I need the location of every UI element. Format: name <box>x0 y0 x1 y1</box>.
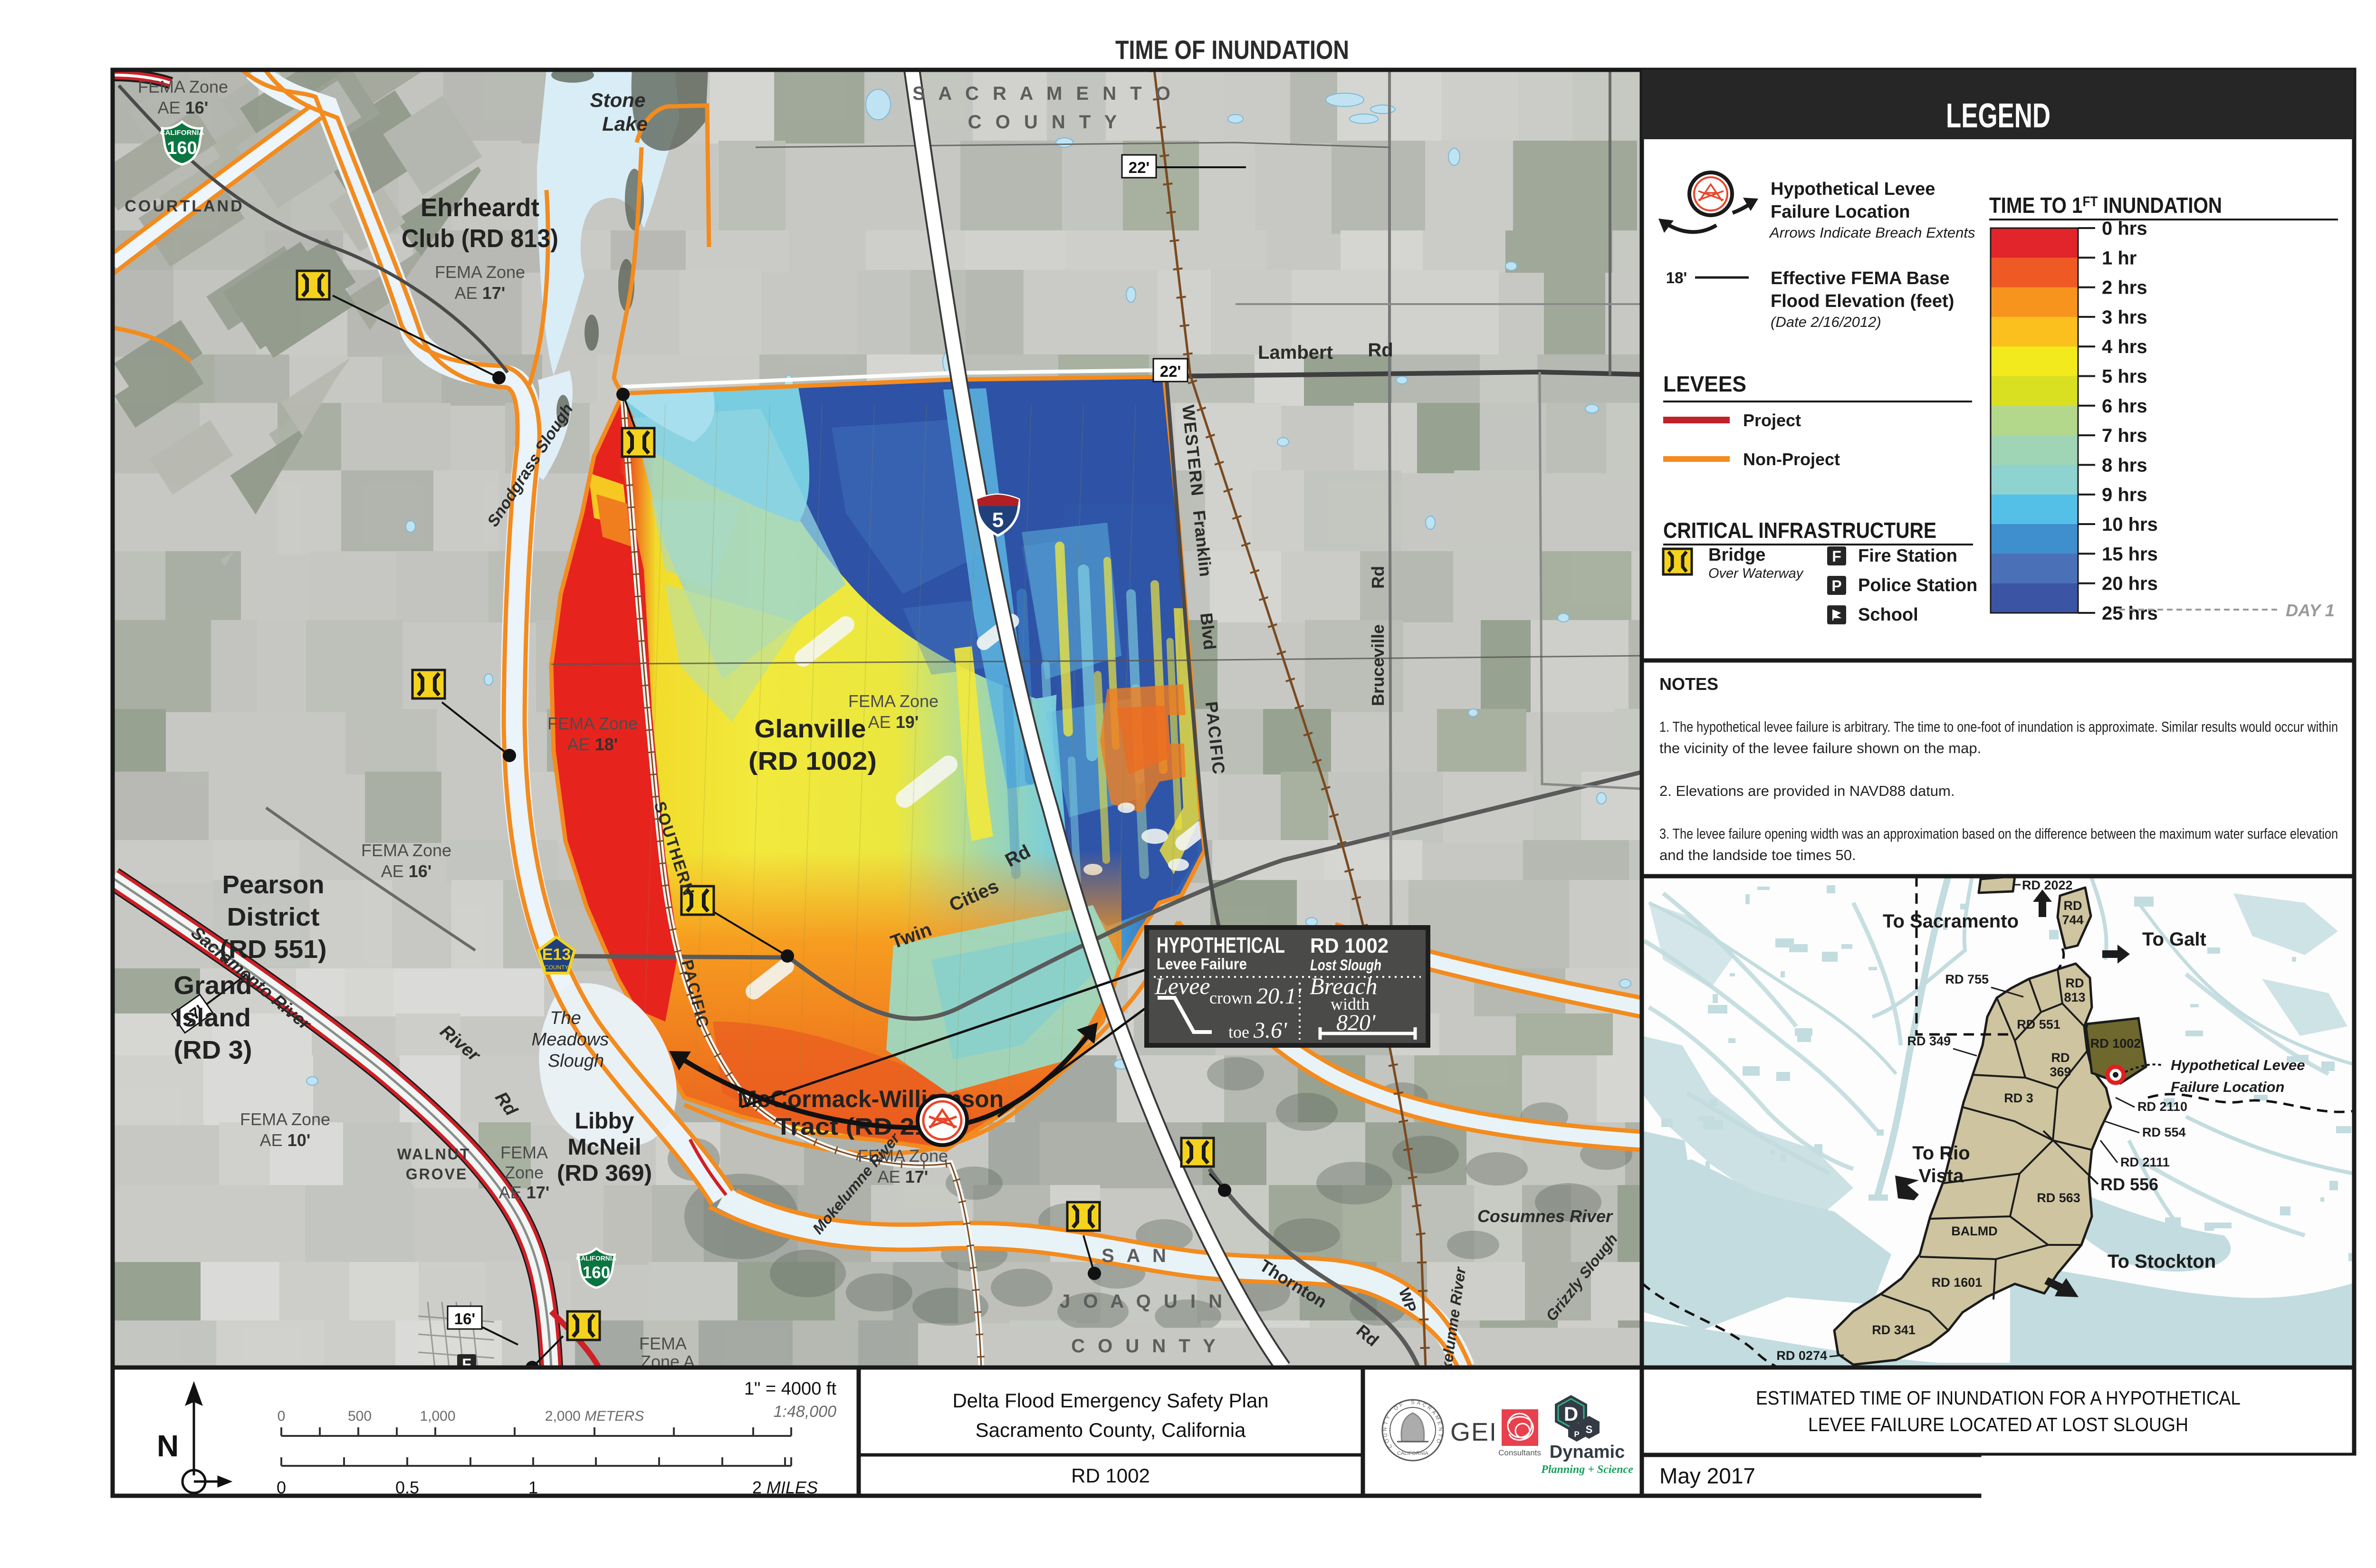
svg-text:(RD 369): (RD 369) <box>557 1161 652 1186</box>
svg-text:16': 16' <box>454 1310 476 1328</box>
svg-text:813: 813 <box>2064 990 2085 1004</box>
svg-text:Blvd: Blvd <box>1197 612 1220 651</box>
svg-text:160: 160 <box>167 138 197 158</box>
svg-text:AE 19': AE 19' <box>868 712 919 732</box>
svg-text:22': 22' <box>1160 363 1181 380</box>
svg-text:GEI: GEI <box>1450 1418 1497 1446</box>
svg-text:2. Elevations are provided in: 2. Elevations are provided in NAVD88 dat… <box>1659 783 1954 799</box>
svg-text:AE 17': AE 17' <box>455 283 506 303</box>
svg-text:Meadows: Meadows <box>532 1030 609 1050</box>
svg-text:Hypothetical Levee: Hypothetical Levee <box>1771 179 1935 199</box>
svg-text:25 hrs: 25 hrs <box>2102 603 2158 624</box>
svg-text:P: P <box>1574 1430 1579 1439</box>
svg-text:Libby: Libby <box>575 1109 634 1134</box>
svg-text:ESTIMATED TIME OF INUNDATION F: ESTIMATED TIME OF INUNDATION FOR A HYPOT… <box>1756 1387 2241 1409</box>
svg-text:CRITICAL INFRASTRUCTURE: CRITICAL INFRASTRUCTURE <box>1663 518 1936 543</box>
svg-text:To Stockton: To Stockton <box>2108 1251 2216 1272</box>
svg-text:N: N <box>1437 1427 1443 1431</box>
svg-text:2,000 METERS: 2,000 METERS <box>545 1408 644 1424</box>
svg-text:N: N <box>157 1429 179 1463</box>
svg-text:TIME OF INUNDATION: TIME OF INUNDATION <box>1115 35 1349 65</box>
svg-text:Rd: Rd <box>1368 566 1388 589</box>
svg-text:To Sacramento: To Sacramento <box>1883 911 2019 932</box>
svg-text:0: 0 <box>277 1478 286 1497</box>
svg-text:820': 820' <box>1336 1010 1376 1035</box>
svg-text:1:48,000: 1:48,000 <box>774 1403 836 1421</box>
svg-text:Bridge: Bridge <box>1708 545 1765 565</box>
svg-text:7 hrs: 7 hrs <box>2102 425 2147 446</box>
svg-text:LEVEES: LEVEES <box>1663 372 1746 396</box>
svg-text:500: 500 <box>348 1408 372 1424</box>
svg-text:S: S <box>1586 1424 1593 1435</box>
svg-text:RD 1002: RD 1002 <box>1310 934 1389 957</box>
svg-text:Pearson: Pearson <box>222 870 325 899</box>
svg-text:Club (RD 813): Club (RD 813) <box>402 224 558 253</box>
svg-text:To Rio: To Rio <box>1912 1143 1970 1164</box>
svg-text:C O U N T Y: C O U N T Y <box>1071 1336 1219 1357</box>
svg-text:5 hrs: 5 hrs <box>2102 366 2147 387</box>
svg-text:FEMA: FEMA <box>500 1143 548 1162</box>
svg-text:LEGEND: LEGEND <box>1946 97 2050 135</box>
svg-text:N: N <box>1382 1427 1388 1431</box>
svg-text:HYPOTHETICAL: HYPOTHETICAL <box>1157 933 1285 957</box>
svg-text:RD 554: RD 554 <box>2142 1125 2186 1139</box>
svg-text:RD 2111: RD 2111 <box>2120 1155 2170 1169</box>
svg-text:Vista: Vista <box>1919 1166 1964 1186</box>
svg-text:RD 1601: RD 1601 <box>1932 1275 1983 1290</box>
svg-text:DAY 1: DAY 1 <box>2286 601 2335 620</box>
svg-text:(Date 2/16/2012): (Date 2/16/2012) <box>1771 314 1881 330</box>
svg-text:Non-Project: Non-Project <box>1743 449 1840 469</box>
svg-text:Hypothetical Levee: Hypothetical Levee <box>2171 1057 2305 1073</box>
svg-text:AE 18': AE 18' <box>567 735 618 754</box>
svg-text:2 MILES: 2 MILES <box>752 1478 818 1497</box>
svg-text:D: D <box>1564 1403 1578 1425</box>
svg-text:TIME TO 1FT INUNDATION: TIME TO 1FT INUNDATION <box>1989 193 2222 218</box>
svg-text:160: 160 <box>583 1263 610 1282</box>
svg-text:Planning + Science: Planning + Science <box>1541 1463 1633 1476</box>
svg-text:RD 2110: RD 2110 <box>2137 1100 2187 1114</box>
svg-text:6 hrs: 6 hrs <box>2102 396 2147 417</box>
svg-text:RD 2022: RD 2022 <box>2022 878 2073 892</box>
svg-text:Lake: Lake <box>602 113 648 135</box>
svg-text:May 2017: May 2017 <box>1659 1463 1755 1488</box>
svg-text:RD: RD <box>2051 1051 2070 1065</box>
svg-text:S: S <box>1411 1400 1414 1405</box>
svg-text:Failure Location: Failure Location <box>2171 1079 2284 1095</box>
svg-text:CALIFORNIA: CALIFORNIA <box>160 129 204 137</box>
svg-text:(RD 3): (RD 3) <box>174 1036 252 1064</box>
svg-text:Consultants: Consultants <box>1498 1448 1541 1457</box>
svg-text:RD: RD <box>2064 899 2082 913</box>
svg-text:AE 10': AE 10' <box>260 1130 311 1150</box>
svg-text:Ehrheardt: Ehrheardt <box>421 193 539 222</box>
svg-text:Police Station: Police Station <box>1858 575 1977 595</box>
svg-text:Effective FEMA Base: Effective FEMA Base <box>1771 268 1950 288</box>
svg-text:RD 0274: RD 0274 <box>1776 1348 1827 1363</box>
svg-text:RD 1002: RD 1002 <box>1071 1464 1150 1487</box>
svg-text:Glanville: Glanville <box>755 715 866 743</box>
svg-text:RD 1002: RD 1002 <box>2090 1036 2141 1051</box>
svg-text:District: District <box>227 903 320 931</box>
svg-text:Levee: Levee <box>1154 973 1210 999</box>
svg-text:CALIFORNIA: CALIFORNIA <box>1397 1451 1429 1456</box>
svg-text:School: School <box>1858 605 1918 625</box>
svg-text:Cosumnes River: Cosumnes River <box>1477 1206 1613 1226</box>
svg-text:NOTES: NOTES <box>1659 674 1718 694</box>
svg-text:C O U N T Y: C O U N T Y <box>968 112 1121 133</box>
svg-text:Over Waterway: Over Waterway <box>1708 566 1804 581</box>
svg-text:The: The <box>550 1008 581 1028</box>
svg-text:Flood Elevation (feet): Flood Elevation (feet) <box>1771 291 1954 311</box>
svg-text:FEMA Zone: FEMA Zone <box>138 77 228 96</box>
svg-text:Zone: Zone <box>505 1163 544 1182</box>
svg-text:1" = 4000 ft: 1" = 4000 ft <box>744 1379 837 1399</box>
svg-text:S A N: S A N <box>1102 1245 1170 1266</box>
svg-text:3 hrs: 3 hrs <box>2102 307 2147 328</box>
svg-text:Arrows Indicate Breach Extents: Arrows Indicate Breach Extents <box>1769 224 1975 241</box>
svg-text:8 hrs: 8 hrs <box>2102 455 2147 476</box>
svg-text:FEMA Zone: FEMA Zone <box>848 691 939 711</box>
svg-text:20 hrs: 20 hrs <box>2102 574 2158 594</box>
svg-text:RD 551: RD 551 <box>2017 1017 2060 1032</box>
svg-text:To Galt: To Galt <box>2142 929 2206 950</box>
svg-text:the vicinity of the levee fail: the vicinity of the levee failure shown … <box>1659 740 1981 756</box>
svg-text:FEMA Zone: FEMA Zone <box>240 1109 330 1129</box>
svg-text:RD: RD <box>2066 976 2084 990</box>
svg-text:Fire Station: Fire Station <box>1858 546 1957 566</box>
svg-text:1,000: 1,000 <box>420 1408 455 1424</box>
svg-text:9 hrs: 9 hrs <box>2102 485 2147 506</box>
svg-text:Figure D1B: Figure D1B <box>2227 1463 2338 1488</box>
svg-text:P: P <box>1831 577 1841 594</box>
svg-text:5: 5 <box>992 508 1004 532</box>
svg-text:CALIFORNIA: CALIFORNIA <box>576 1255 616 1262</box>
svg-text:Bruceville: Bruceville <box>1368 624 1388 706</box>
svg-text:GROVE: GROVE <box>406 1166 468 1183</box>
svg-text:AE 16': AE 16' <box>158 98 209 117</box>
svg-text:RD 755: RD 755 <box>1945 972 1989 986</box>
svg-text:and the landside toe times 50.: and the landside toe times 50. <box>1659 847 1856 863</box>
svg-text:15 hrs: 15 hrs <box>2102 544 2158 564</box>
svg-text:WALNUT: WALNUT <box>397 1146 471 1163</box>
svg-text:Lambert: Lambert <box>1258 342 1333 363</box>
svg-text:4 hrs: 4 hrs <box>2102 336 2147 357</box>
svg-text:Project: Project <box>1743 411 1801 430</box>
svg-text:0 hrs: 0 hrs <box>2102 218 2147 239</box>
svg-text:RD 3: RD 3 <box>2004 1091 2033 1105</box>
svg-text:COUNTY: COUNTY <box>545 964 569 971</box>
svg-text:F: F <box>1832 548 1841 565</box>
svg-text:Failure Location: Failure Location <box>1771 202 1910 222</box>
svg-text:E13: E13 <box>542 946 571 964</box>
svg-text:FEMA: FEMA <box>639 1334 687 1353</box>
svg-text:Rd: Rd <box>1368 340 1393 361</box>
svg-text:AE 16': AE 16' <box>381 861 432 881</box>
svg-text:RD 349: RD 349 <box>1907 1034 1951 1048</box>
svg-text:RD 563: RD 563 <box>2037 1191 2080 1205</box>
svg-text:Stone: Stone <box>590 89 646 111</box>
svg-text:744: 744 <box>2062 913 2083 927</box>
svg-text:BALMD: BALMD <box>1951 1224 1997 1238</box>
svg-text:Slough: Slough <box>548 1051 604 1071</box>
svg-text:Lost Slough: Lost Slough <box>1310 956 1381 974</box>
svg-text:Levee Failure: Levee Failure <box>1157 955 1247 973</box>
svg-text:1: 1 <box>528 1478 538 1497</box>
svg-text:COURTLAND: COURTLAND <box>125 197 244 215</box>
svg-text:LEVEE FAILURE LOCATED AT LOST: LEVEE FAILURE LOCATED AT LOST SLOUGH <box>1808 1414 2188 1435</box>
svg-text:3. The levee failure opening w: 3. The levee failure opening width was a… <box>1659 825 2338 842</box>
svg-text:Island: Island <box>175 1004 251 1032</box>
svg-text:AE 17': AE 17' <box>499 1183 550 1202</box>
svg-text:FEMA Zone: FEMA Zone <box>361 841 451 860</box>
svg-text:Dynamic: Dynamic <box>1550 1442 1625 1462</box>
svg-text:S A C R A M E N T O: S A C R A M E N T O <box>912 83 1175 104</box>
svg-text:1. The hypothetical levee fail: 1. The hypothetical levee failure is arb… <box>1659 718 2338 735</box>
svg-text:J O A Q U I N: J O A Q U I N <box>1060 1291 1226 1312</box>
svg-text:RD 341: RD 341 <box>1872 1323 1916 1337</box>
svg-text:Delta Flood Emergency Safety P: Delta Flood Emergency Safety Plan <box>952 1389 1268 1412</box>
svg-text:0.5: 0.5 <box>395 1478 419 1497</box>
svg-text:18': 18' <box>1666 269 1687 287</box>
svg-text:369: 369 <box>2050 1065 2071 1079</box>
svg-text:22': 22' <box>1129 159 1150 176</box>
svg-text:Sacramento County, California: Sacramento County, California <box>976 1419 1246 1441</box>
svg-text:McNeil: McNeil <box>568 1135 642 1160</box>
svg-text:10 hrs: 10 hrs <box>2102 514 2158 535</box>
svg-text:RD 556: RD 556 <box>2100 1175 2158 1194</box>
svg-text:FEMA Zone: FEMA Zone <box>435 262 525 282</box>
svg-text:0: 0 <box>278 1408 286 1424</box>
svg-text:FEMA Zone: FEMA Zone <box>547 714 638 733</box>
svg-text:1 hr: 1 hr <box>2102 248 2136 268</box>
svg-text:(RD 1002): (RD 1002) <box>748 747 877 775</box>
svg-text:2 hrs: 2 hrs <box>2102 277 2147 298</box>
svg-text:AE 17': AE 17' <box>878 1167 929 1186</box>
